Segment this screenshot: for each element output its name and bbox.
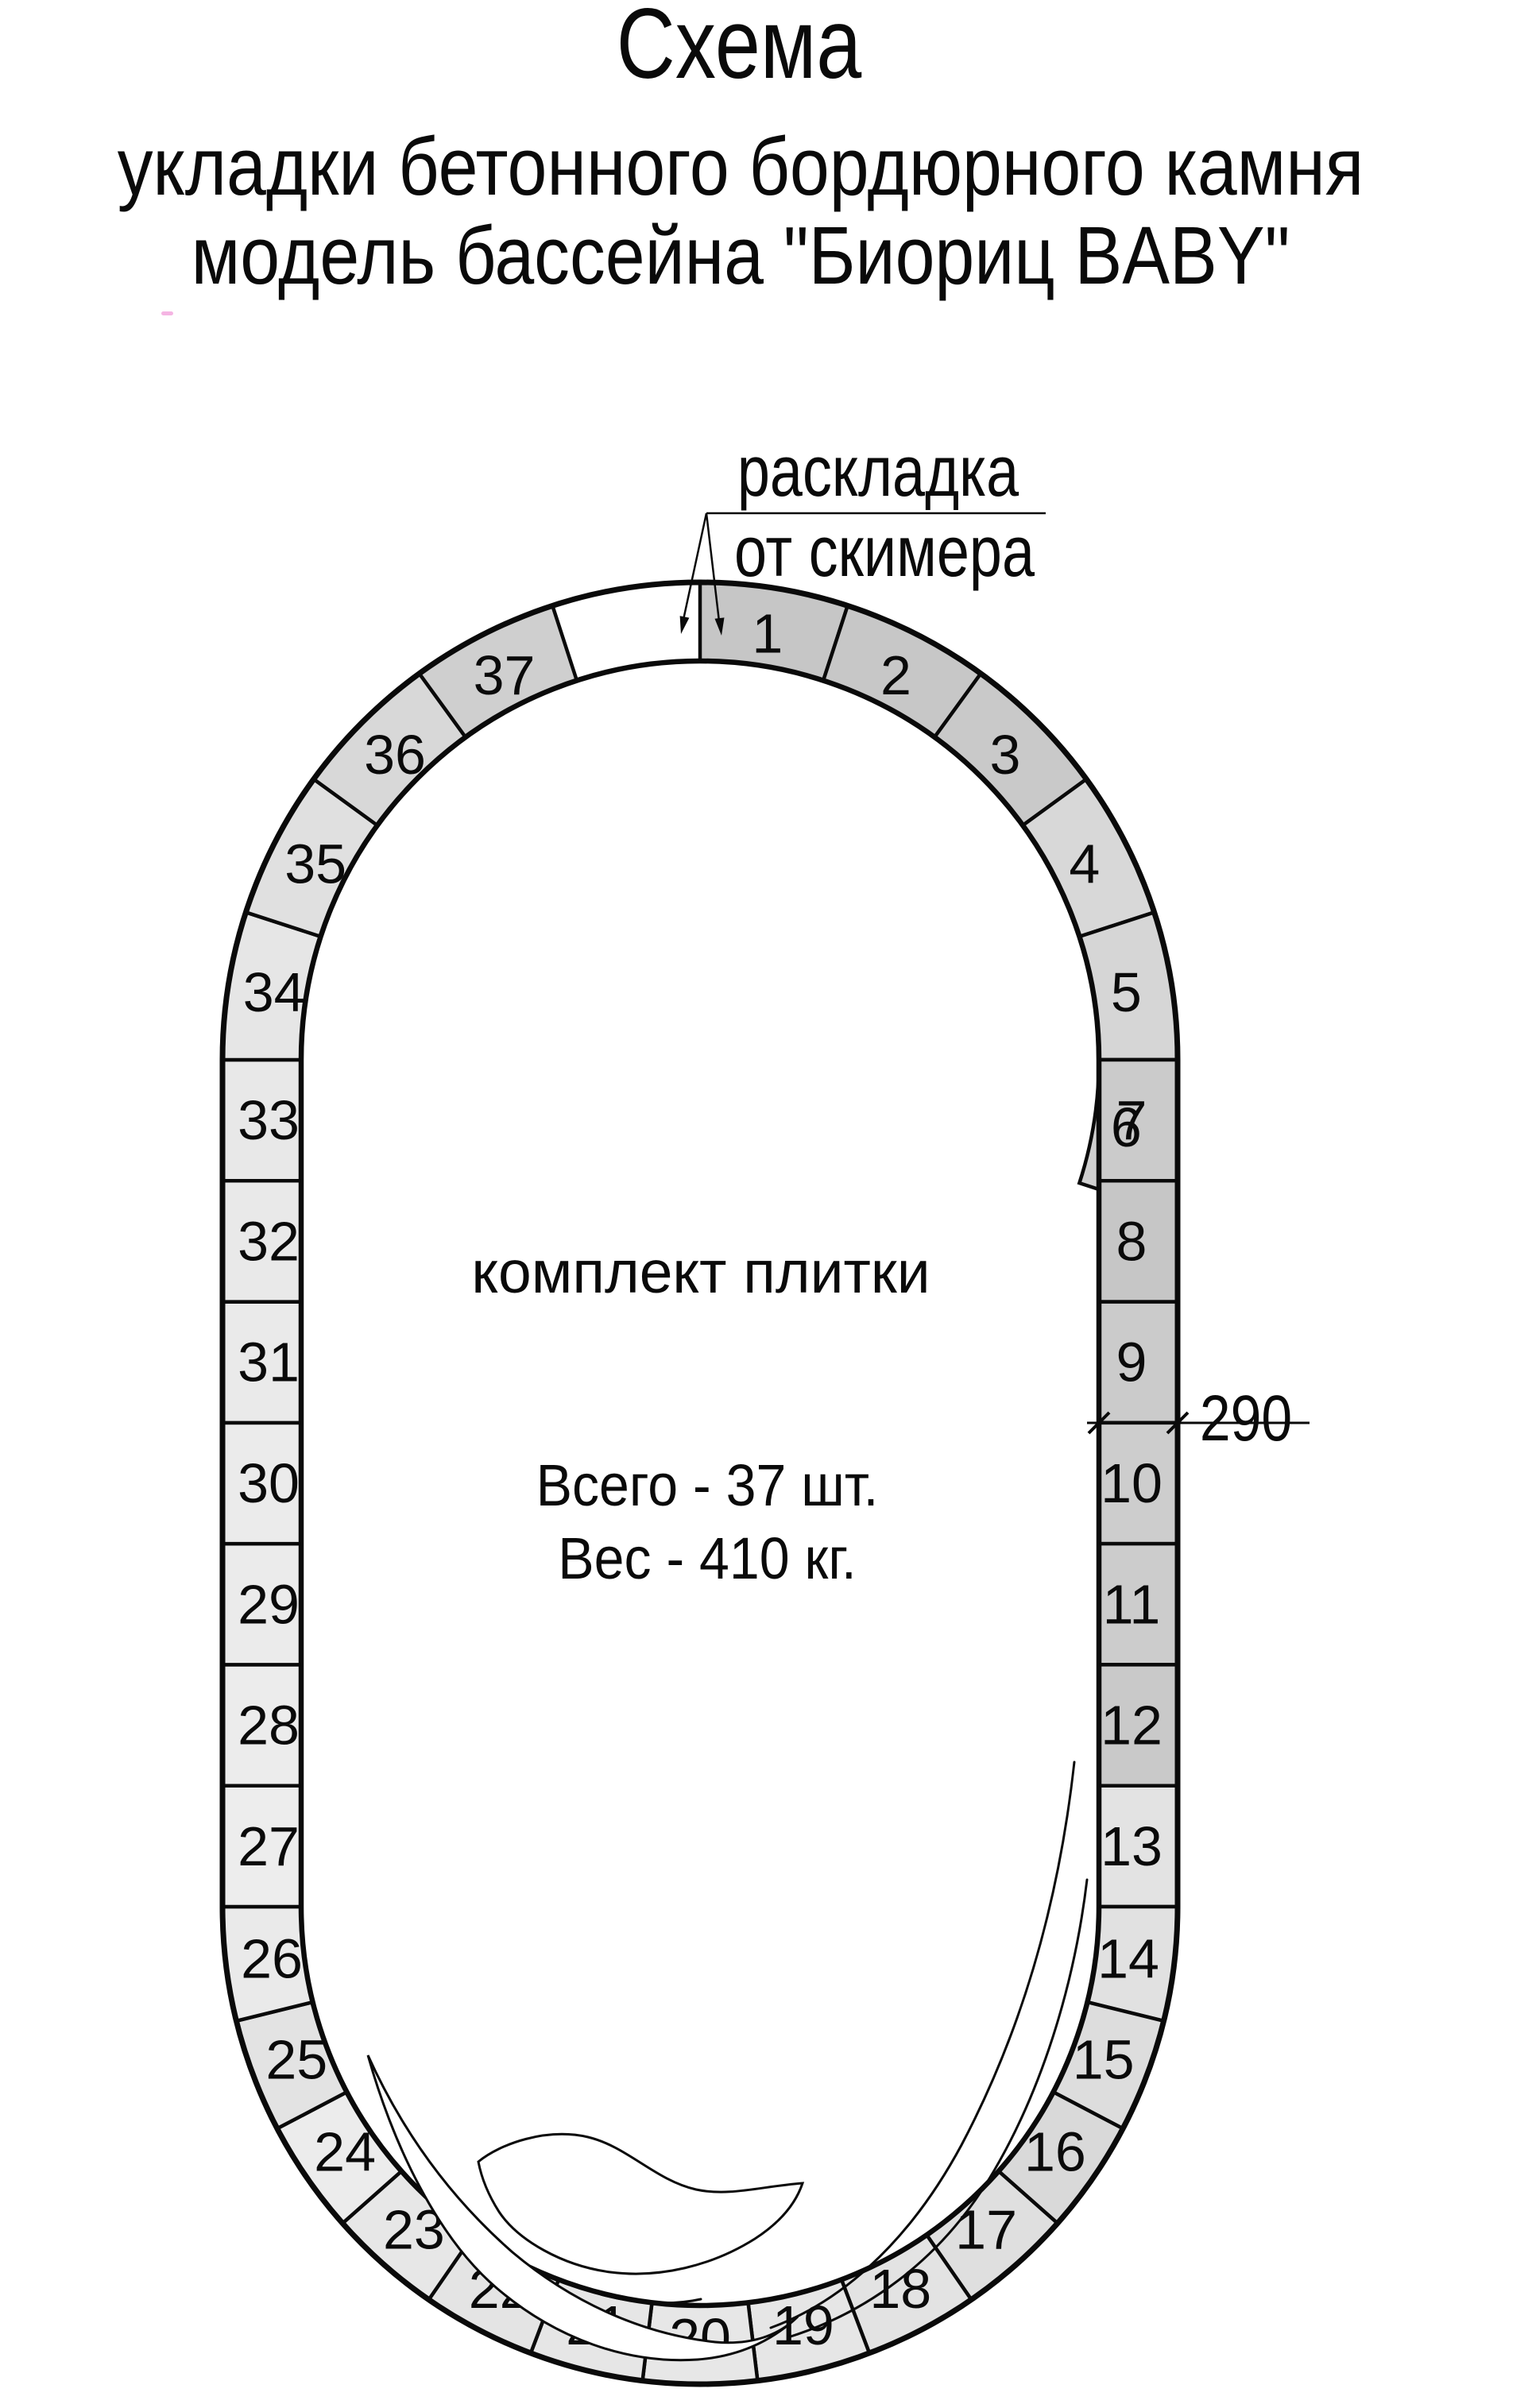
curb-stone-number-32: 32 <box>238 1210 300 1272</box>
curb-stone-number-30: 30 <box>238 1452 300 1514</box>
curb-stone-number-16: 16 <box>1024 2121 1086 2183</box>
curb-layout-scheme-page: Схема укладки бетонного бордюрного камня… <box>0 0 1532 2408</box>
curb-stone-number-5: 5 <box>1111 961 1142 1023</box>
curb-stone-number-14: 14 <box>1097 1928 1159 1990</box>
curb-stone-number-27: 27 <box>238 1815 300 1877</box>
ring-inner-outline <box>301 661 1099 2306</box>
curb-stone-number-12: 12 <box>1101 1695 1163 1757</box>
curb-stone-number-29: 29 <box>238 1573 300 1635</box>
curb-stone-number-25: 25 <box>265 2029 327 2091</box>
curb-stone-number-1: 1 <box>752 603 783 665</box>
curb-stone-number-10: 10 <box>1101 1452 1163 1514</box>
curb-stone-number-17: 17 <box>955 2198 1017 2260</box>
curb-stone-number-8: 8 <box>1116 1210 1147 1272</box>
curb-stone-number-31: 31 <box>238 1332 300 1393</box>
sketch-wave-shape <box>478 2134 803 2274</box>
curb-stone-number-37: 37 <box>474 644 536 706</box>
curb-ring-diagram: 1234567891011121314151617181920212223242… <box>0 0 1532 2408</box>
curb-stone-number-9: 9 <box>1116 1332 1147 1393</box>
curb-segments-layer <box>222 582 1178 2384</box>
callout-arrowhead-1 <box>680 616 690 634</box>
curb-stone-number-26: 26 <box>241 1928 303 1990</box>
curb-stone-number-3: 3 <box>990 724 1021 786</box>
curb-stone-number-34: 34 <box>243 961 305 1023</box>
curb-stone-number-28: 28 <box>238 1695 300 1757</box>
curb-stone-number-19: 19 <box>772 2294 834 2356</box>
curb-stone-number-15: 15 <box>1073 2029 1135 2091</box>
segment-numbers-layer: 1234567891011121314151617181920212223242… <box>238 603 1163 2369</box>
curb-stone-number-36: 36 <box>364 724 426 786</box>
curb-stone-number-11: 11 <box>1103 1573 1161 1635</box>
curb-stone-number-18: 18 <box>869 2258 931 2320</box>
ring-outer-outline <box>222 582 1178 2384</box>
curb-stone-number-13: 13 <box>1101 1815 1163 1877</box>
curb-stone-number-4: 4 <box>1069 833 1100 895</box>
curb-stone-number-7: 7 <box>1116 1089 1147 1151</box>
curb-stone-number-35: 35 <box>284 833 346 895</box>
curb-stone-number-24: 24 <box>314 2121 376 2183</box>
curb-stone-number-33: 33 <box>238 1089 300 1151</box>
curb-stone-number-2: 2 <box>880 644 911 706</box>
